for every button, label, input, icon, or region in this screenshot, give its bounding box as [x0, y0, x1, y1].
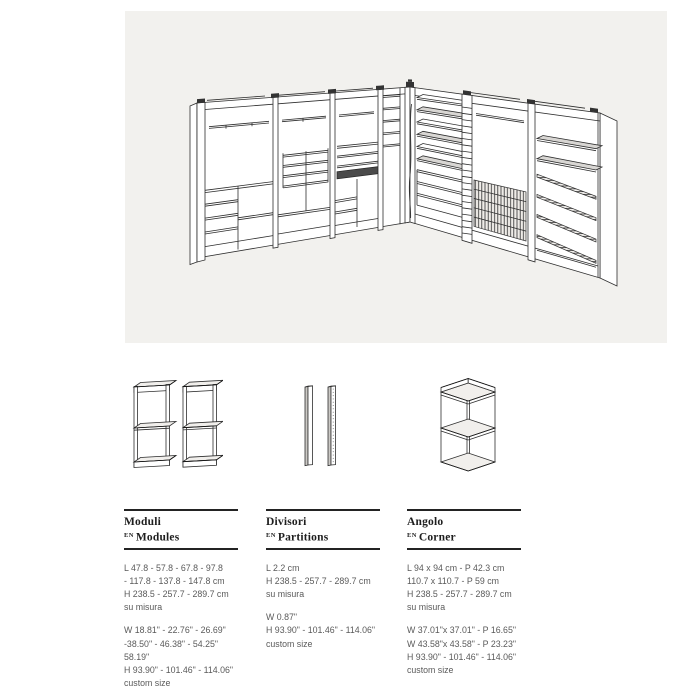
imperial-dimensions: W 37.01"x 37.01" - P 16.65" W 43.58"x 43… [407, 624, 521, 677]
spec-title-en: ENModules [124, 529, 238, 545]
spec-header: Moduli ENModules [124, 511, 238, 550]
spec-column-corner: Angolo ENCorner L 94 x 94 cm - P 42.3 cm… [407, 509, 521, 687]
metric-dimensions: L 2.2 cm H 238.5 - 257.7 - 289.7 cm su m… [266, 562, 380, 602]
metric-dimensions: L 47.8 - 57.8 - 67.8 - 97.8 - 117.8 - 13… [124, 562, 238, 615]
spec-title-it: Divisori [266, 516, 380, 529]
corner-post [405, 79, 415, 223]
spec-title-it: Angolo [407, 516, 521, 529]
en-language-tag: EN [266, 532, 276, 539]
imperial-dimensions: W 0.87" H 93.90" - 101.46" - 114.06" cus… [266, 611, 380, 651]
spec-header: Divisori ENPartitions [266, 511, 380, 550]
spec-column-partitions: Divisori ENPartitions L 2.2 cm H 238.5 -… [266, 509, 380, 661]
spec-header: Angolo ENCorner [407, 511, 521, 550]
corner-thumbnail-drawing [438, 376, 498, 474]
en-language-tag: EN [124, 532, 134, 539]
spec-title-it: Moduli [124, 516, 238, 529]
modules-thumbnail-drawing [131, 373, 223, 473]
spec-title-en: ENCorner [407, 529, 521, 545]
wardrobe-isometric-drawing [125, 11, 667, 343]
right-wall [410, 87, 617, 286]
partitions-thumbnail-drawing [295, 380, 350, 472]
en-language-tag: EN [407, 532, 417, 539]
metric-dimensions: L 94 x 94 cm - P 42.3 cm 110.7 x 110.7 -… [407, 562, 521, 615]
spec-title-en: ENPartitions [266, 529, 380, 545]
hero-panel [125, 11, 667, 343]
spec-column-modules: Moduli ENModules L 47.8 - 57.8 - 67.8 - … [124, 509, 238, 700]
left-wall [190, 85, 410, 264]
imperial-dimensions: W 18.81" - 22.76" - 26.69" -38.50" - 46.… [124, 624, 238, 690]
